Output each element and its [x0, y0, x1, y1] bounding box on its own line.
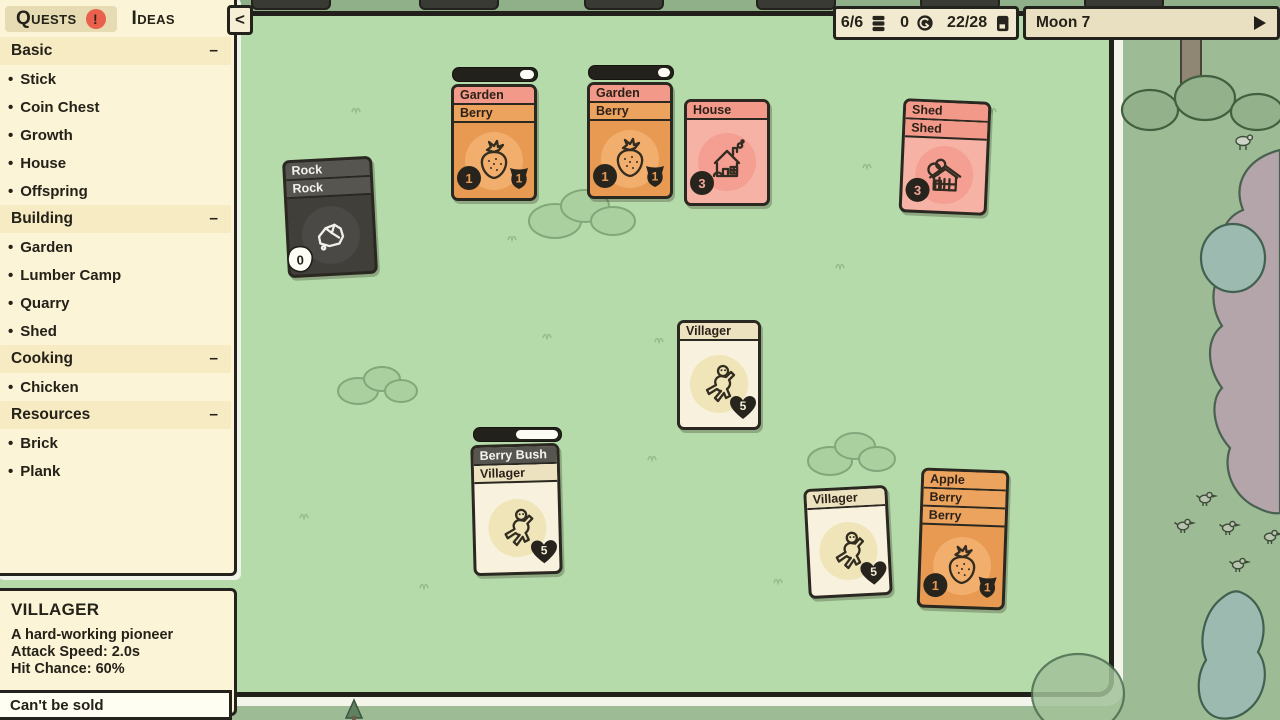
collapse-section-icon: –	[209, 406, 218, 424]
quest-item-shed[interactable]: •Shed	[0, 317, 234, 345]
quest-item-coin-chest[interactable]: •Coin Chest	[0, 93, 234, 121]
bullet-icon: •	[8, 155, 13, 172]
card-count: 6/6	[841, 14, 863, 32]
bullet-icon: •	[8, 239, 13, 256]
tab-quests[interactable]: Quests!	[5, 6, 117, 32]
bullet-icon: •	[8, 99, 13, 116]
svg-text:1: 1	[516, 172, 523, 186]
quest-label: Chicken	[20, 379, 78, 396]
quest-label: Offspring	[20, 183, 88, 200]
card-timer	[588, 65, 674, 80]
svg-text:3: 3	[698, 176, 705, 191]
section-resources[interactable]: Resources–	[0, 401, 231, 429]
bullet-icon: •	[8, 267, 13, 284]
card-shed-stack[interactable]: ShedShed 3	[899, 98, 992, 216]
play-icon[interactable]	[1253, 15, 1267, 31]
card-title: Berry	[590, 103, 670, 121]
heart-badge: 5	[529, 538, 560, 572]
bird-doodles	[1175, 492, 1280, 572]
svg-text:1: 1	[652, 170, 659, 184]
coin-badge: 3	[904, 176, 931, 208]
section-title: Resources	[11, 406, 90, 424]
quest-label: Stick	[20, 71, 56, 88]
timer-fill	[658, 68, 670, 77]
coin-icon	[916, 14, 934, 32]
game-screen: RockRock 0GardenBerry 1 1GardenBerry 1 1…	[0, 0, 1280, 720]
svg-text:1: 1	[931, 578, 939, 593]
card-title: Garden	[590, 85, 670, 103]
svg-text:3: 3	[914, 183, 922, 198]
sheep-doodle	[1236, 135, 1252, 150]
coin-count: 0	[900, 14, 909, 32]
svg-text:1: 1	[465, 171, 472, 186]
card-garden-berry-2[interactable]: GardenBerry 1 1	[587, 82, 673, 199]
quest-item-garden[interactable]: •Garden	[0, 233, 234, 261]
quest-item-offspring[interactable]: •Offspring	[0, 177, 234, 205]
deck-icon	[994, 14, 1011, 33]
bullet-icon: •	[8, 71, 13, 88]
card-apple-berry-berry[interactable]: AppleBerryBerry 1 1	[917, 468, 1010, 611]
teal-bush-doodle	[1199, 591, 1265, 718]
card-rock-stack[interactable]: RockRock 0	[282, 156, 378, 279]
quests-panel: Quests!Ideas Basic–•Stick•Coin Chest•Gro…	[0, 0, 237, 576]
collapse-section-icon: –	[209, 350, 218, 368]
blob-badge: 0	[284, 244, 316, 281]
svg-text:1: 1	[601, 169, 608, 184]
panel-tabs: Quests!Ideas	[0, 0, 234, 37]
quest-list: Basic–•Stick•Coin Chest•Growth•House•Off…	[0, 37, 234, 485]
bullet-icon: •	[8, 323, 13, 340]
bullet-icon: •	[8, 463, 13, 480]
coin-badge: 1	[922, 572, 949, 604]
svg-text:1: 1	[984, 580, 991, 594]
coin-badge: 1	[592, 163, 618, 194]
card-garden-berry-1[interactable]: GardenBerry 1 1	[451, 84, 537, 201]
bullet-icon: •	[8, 379, 13, 396]
quest-label: Garden	[20, 239, 73, 256]
bullet-icon: •	[8, 183, 13, 200]
card-title: House	[687, 102, 767, 120]
quest-item-stick[interactable]: •Stick	[0, 65, 234, 93]
shield-badge: 1	[642, 163, 668, 194]
panel-collapse-button[interactable]: <	[227, 5, 253, 35]
bullet-icon: •	[8, 295, 13, 312]
card-villager-1[interactable]: Villager 5	[677, 320, 761, 430]
bullet-icon: •	[8, 127, 13, 144]
bullet-icon: •	[8, 435, 13, 452]
quest-label: Growth	[20, 127, 73, 144]
quest-label: House	[20, 155, 66, 172]
card-title: Berry Bush	[473, 446, 556, 466]
quest-item-lumber-camp[interactable]: •Lumber Camp	[0, 261, 234, 289]
collapse-section-icon: –	[209, 42, 218, 60]
card-title: Garden	[454, 87, 534, 105]
info-title: VILLAGER	[0, 591, 234, 623]
svg-text:0: 0	[296, 252, 304, 267]
info-stat: Hit Chance: 60%	[0, 660, 234, 677]
quest-label: Plank	[20, 463, 60, 480]
quest-label: Coin Chest	[20, 99, 99, 116]
shield-badge: 1	[506, 165, 532, 196]
cant-sell-label: Can't be sold	[10, 697, 104, 714]
quest-item-growth[interactable]: •Growth	[0, 121, 234, 149]
coin-badge: 3	[689, 170, 715, 201]
quest-item-plank[interactable]: •Plank	[0, 457, 234, 485]
tab-ideas[interactable]: Ideas	[121, 6, 186, 32]
teal-bush-doodle	[1201, 224, 1265, 292]
cloud-blob-doodle	[1210, 150, 1280, 513]
section-title: Cooking	[11, 350, 73, 368]
card-berrybush-villager[interactable]: Berry BushVillager 5	[470, 443, 562, 576]
card-stack-icon	[870, 14, 887, 33]
info-stat: Attack Speed: 2.0s	[0, 643, 234, 660]
card-house[interactable]: House 3	[684, 99, 770, 206]
card-title: Berry	[454, 105, 534, 123]
quest-item-chicken[interactable]: •Chicken	[0, 373, 234, 401]
tab-label: Ideas	[132, 8, 175, 30]
info-description: A hard-working pioneer	[0, 623, 234, 643]
section-title: Building	[11, 210, 73, 228]
card-timer	[473, 427, 562, 442]
alert-icon: !	[86, 9, 106, 29]
section-cooking[interactable]: Cooking–	[0, 345, 231, 373]
resource-counter-bar: 6/6 0 22/28	[833, 6, 1019, 40]
info-footer: Can't be sold	[0, 690, 232, 720]
tree-doodle	[1122, 34, 1280, 130]
card-villager-2[interactable]: Villager 5	[803, 485, 893, 599]
quest-item-house[interactable]: •House	[0, 149, 234, 177]
quest-label: Lumber Camp	[20, 267, 121, 284]
card-timer	[452, 67, 538, 82]
svg-text:5: 5	[541, 543, 548, 557]
card-title: Villager	[680, 323, 758, 341]
quest-item-quarry[interactable]: •Quarry	[0, 289, 234, 317]
card-title: Villager	[474, 464, 557, 484]
section-title: Basic	[11, 42, 52, 60]
section-building[interactable]: Building–	[0, 205, 231, 233]
quest-label: Shed	[20, 323, 57, 340]
coin-badge: 1	[456, 165, 482, 196]
deck-count: 22/28	[947, 14, 987, 32]
svg-text:5: 5	[870, 565, 878, 579]
collapse-section-icon: –	[209, 210, 218, 228]
heart-badge: 5	[728, 394, 758, 427]
tab-label: Quests	[16, 8, 77, 30]
moon-timer-bar: Moon 7	[1023, 6, 1280, 40]
timer-fill	[516, 430, 558, 439]
moon-label: Moon 7	[1036, 14, 1090, 32]
quest-label: Brick	[20, 435, 58, 452]
section-basic[interactable]: Basic–	[0, 37, 231, 65]
shield-badge: 1	[974, 573, 1001, 605]
quest-item-brick[interactable]: •Brick	[0, 429, 234, 457]
timer-fill	[520, 70, 534, 79]
chevron-left-icon: <	[235, 10, 245, 30]
pine-doodle	[346, 700, 362, 720]
quest-label: Quarry	[20, 295, 69, 312]
svg-text:5: 5	[740, 399, 747, 413]
heart-badge: 5	[858, 559, 890, 594]
